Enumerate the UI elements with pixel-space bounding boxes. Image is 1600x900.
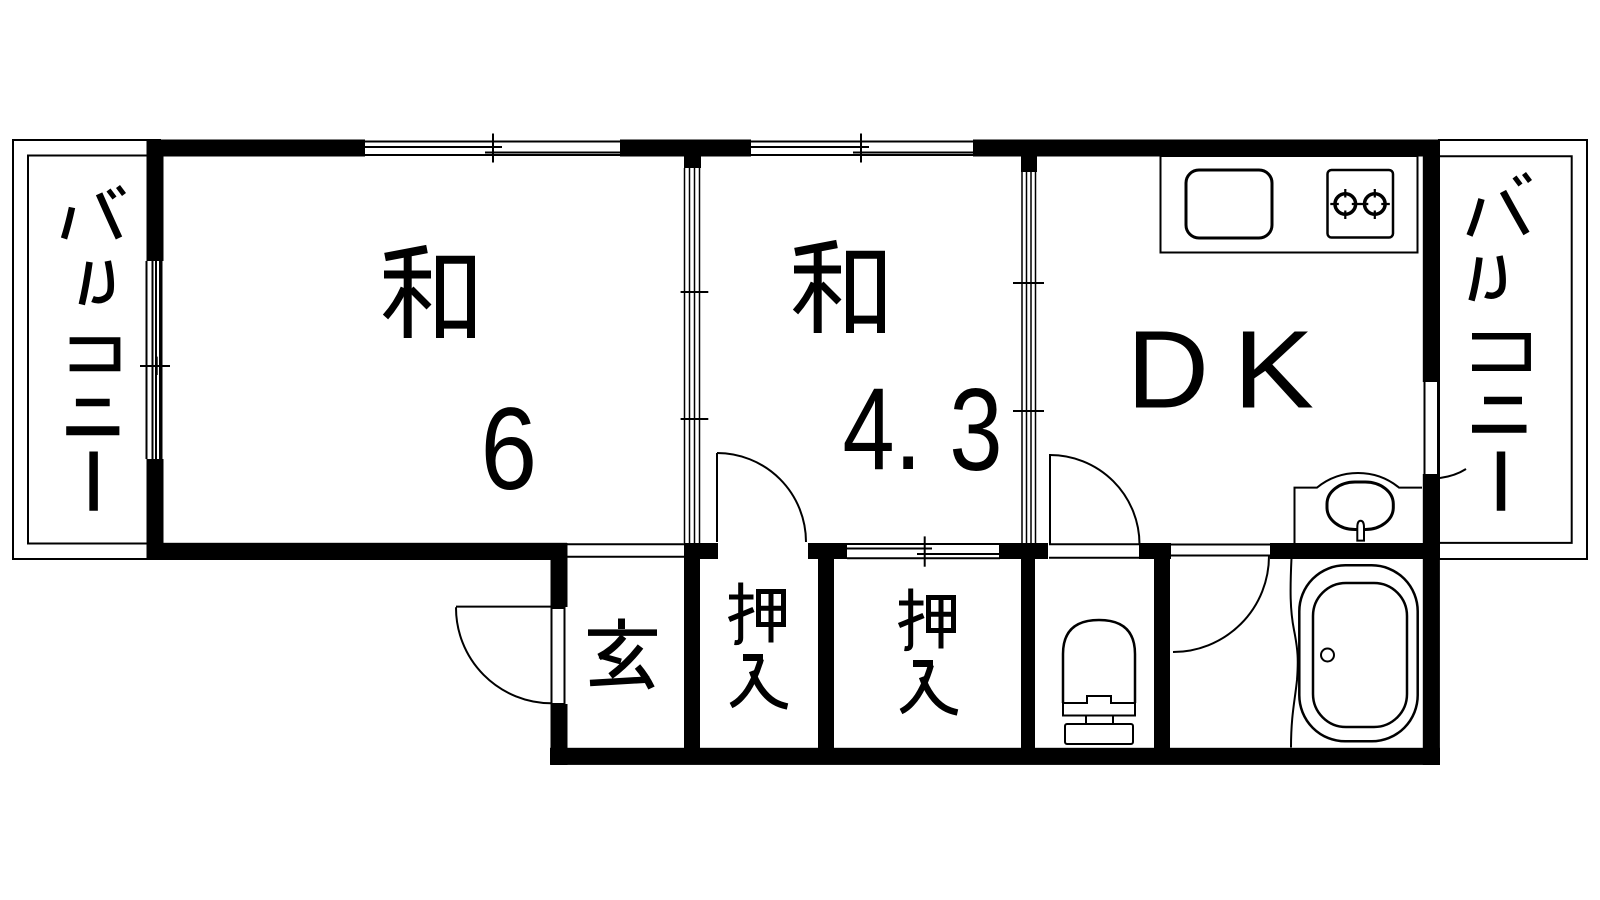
- svg-text:6: 6: [481, 384, 538, 514]
- svg-text:4: 4: [843, 364, 895, 494]
- svg-text:D: D: [1127, 307, 1209, 431]
- svg-text:K: K: [1233, 308, 1314, 432]
- svg-text:3: 3: [949, 364, 1002, 495]
- svg-text:.: .: [894, 364, 922, 494]
